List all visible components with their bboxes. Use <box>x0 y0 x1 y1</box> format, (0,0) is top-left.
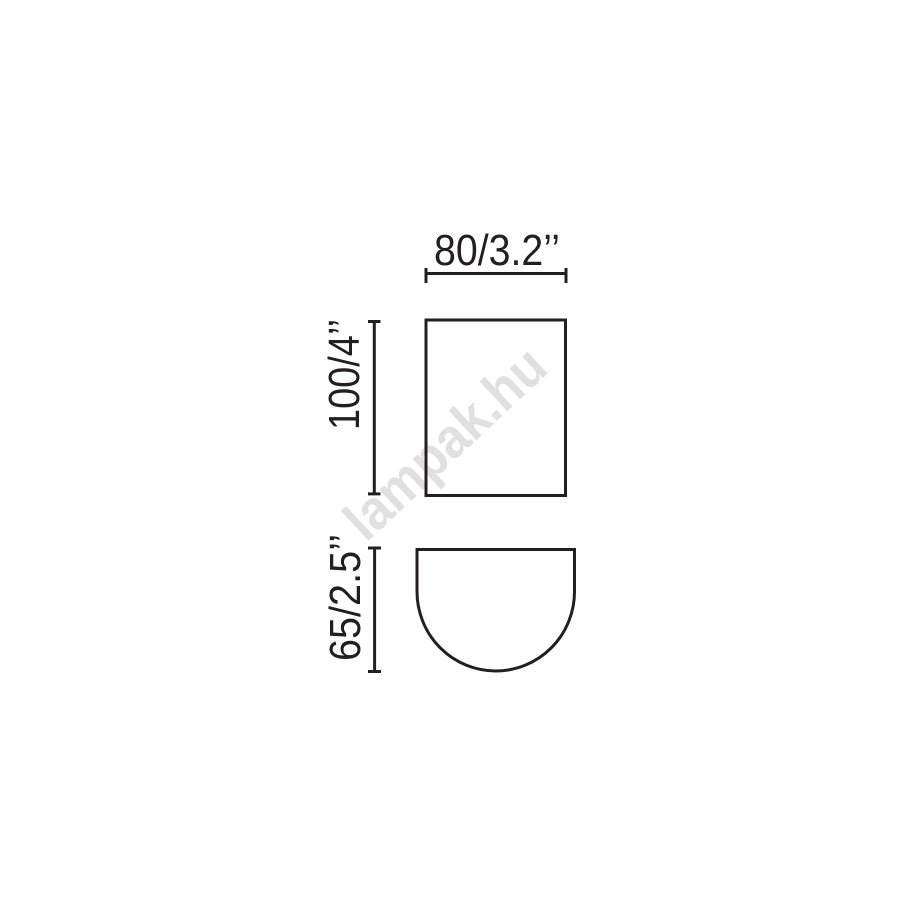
svg-text:100/4’’: 100/4’’ <box>320 319 369 430</box>
svg-text:80/3.2’’: 80/3.2’’ <box>434 226 560 275</box>
svg-text:65/2.5’’: 65/2.5’’ <box>321 534 370 661</box>
